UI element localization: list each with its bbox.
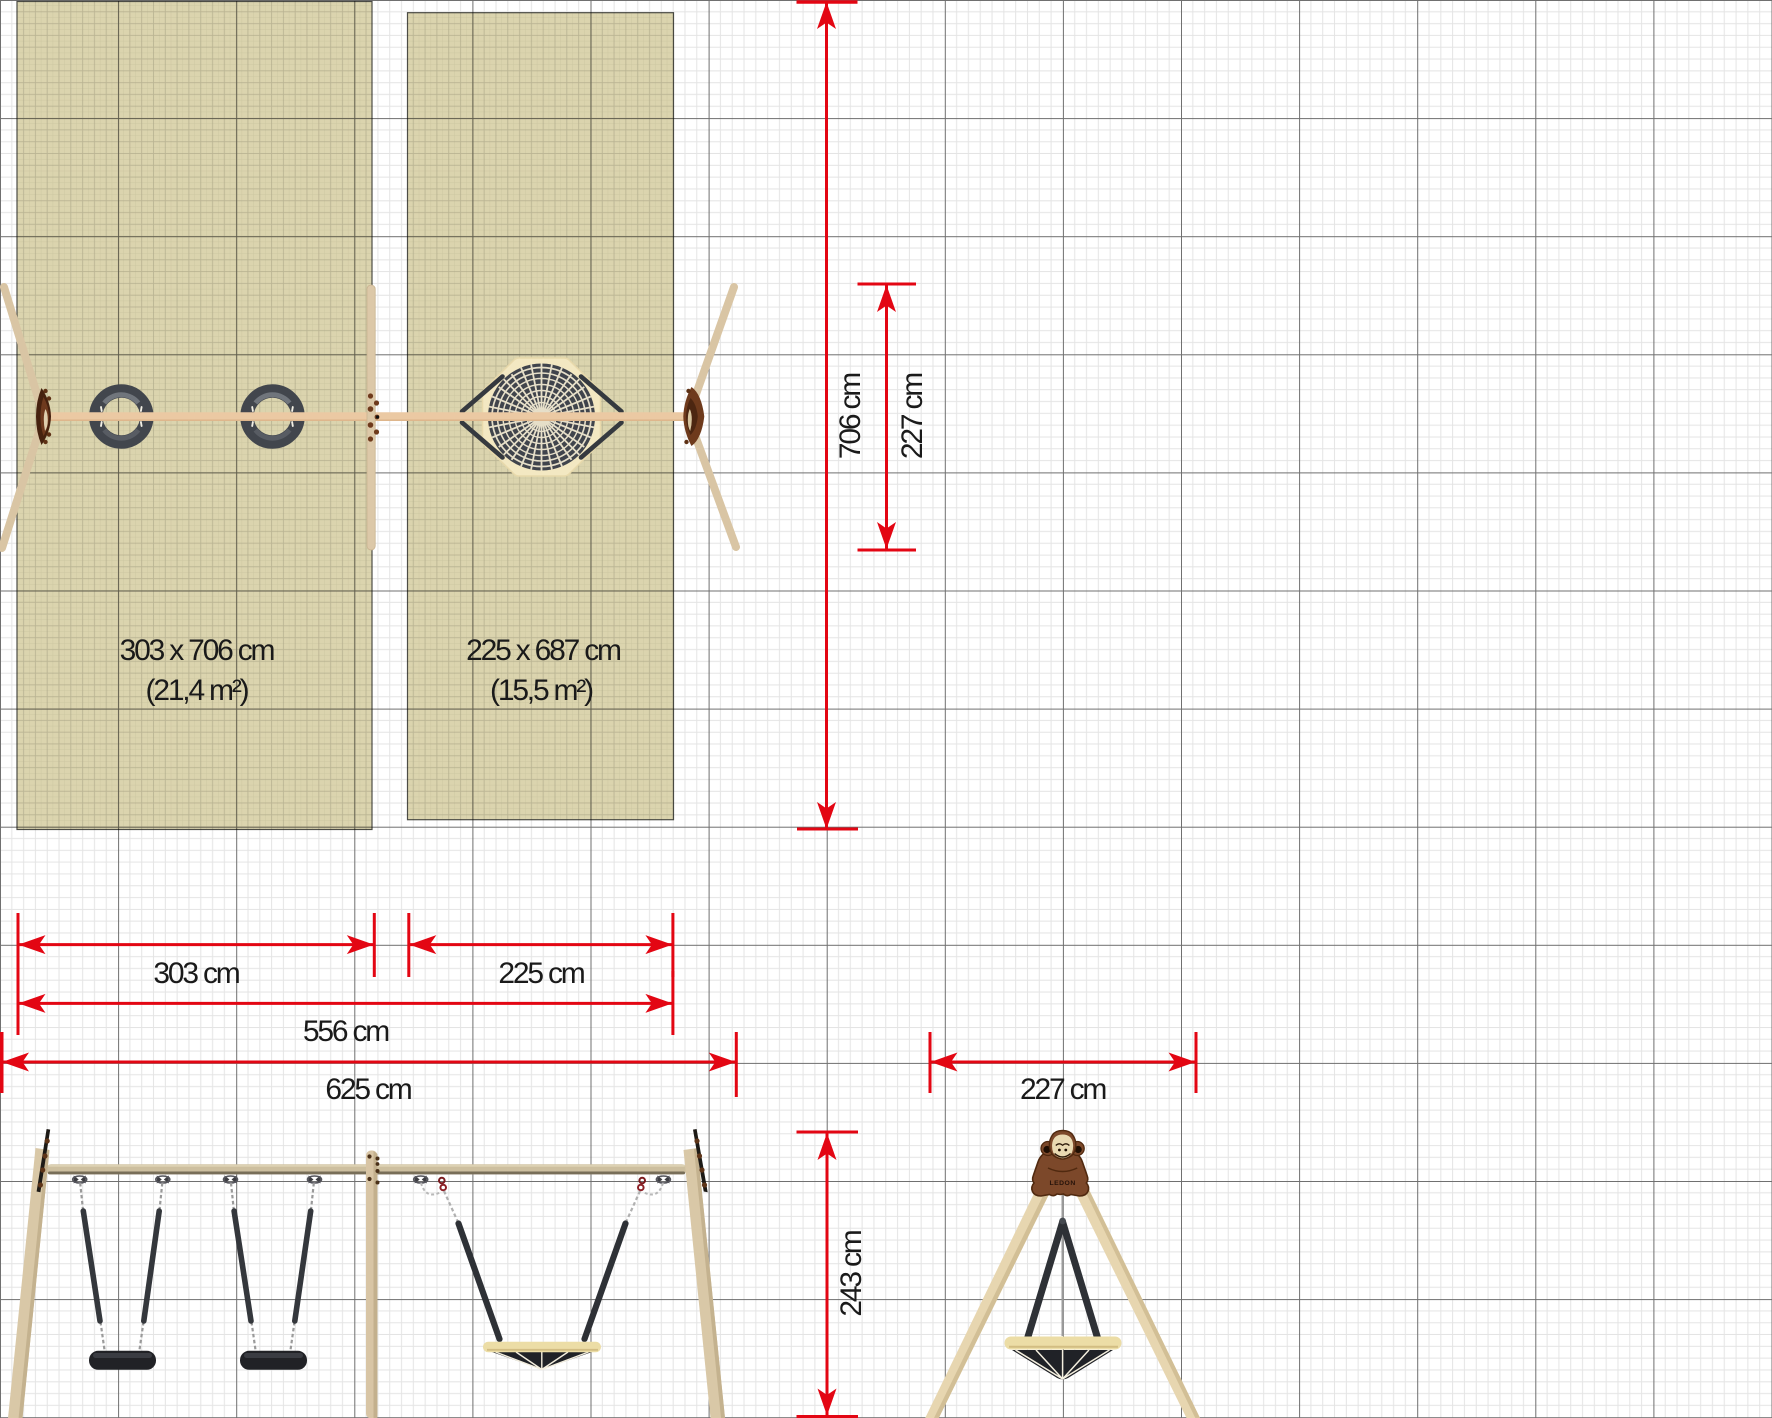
svg-text:225 cm: 225 cm: [498, 957, 584, 990]
svg-text:LEDON: LEDON: [1049, 1180, 1075, 1187]
svg-text:(15,5 m²): (15,5 m²): [490, 674, 593, 707]
svg-text:556 cm: 556 cm: [303, 1015, 389, 1048]
svg-text:225 x 687 cm: 225 x 687 cm: [466, 634, 621, 667]
svg-text:227 cm: 227 cm: [1020, 1073, 1106, 1106]
svg-text:303 x 706 cm: 303 x 706 cm: [120, 634, 275, 667]
svg-text:706 cm: 706 cm: [834, 373, 867, 459]
svg-text:(21,4 m²): (21,4 m²): [146, 674, 249, 707]
svg-text:243 cm: 243 cm: [835, 1230, 868, 1316]
svg-text:227 cm: 227 cm: [896, 373, 929, 459]
svg-text:625 cm: 625 cm: [325, 1073, 411, 1106]
svg-text:303 cm: 303 cm: [153, 957, 239, 990]
